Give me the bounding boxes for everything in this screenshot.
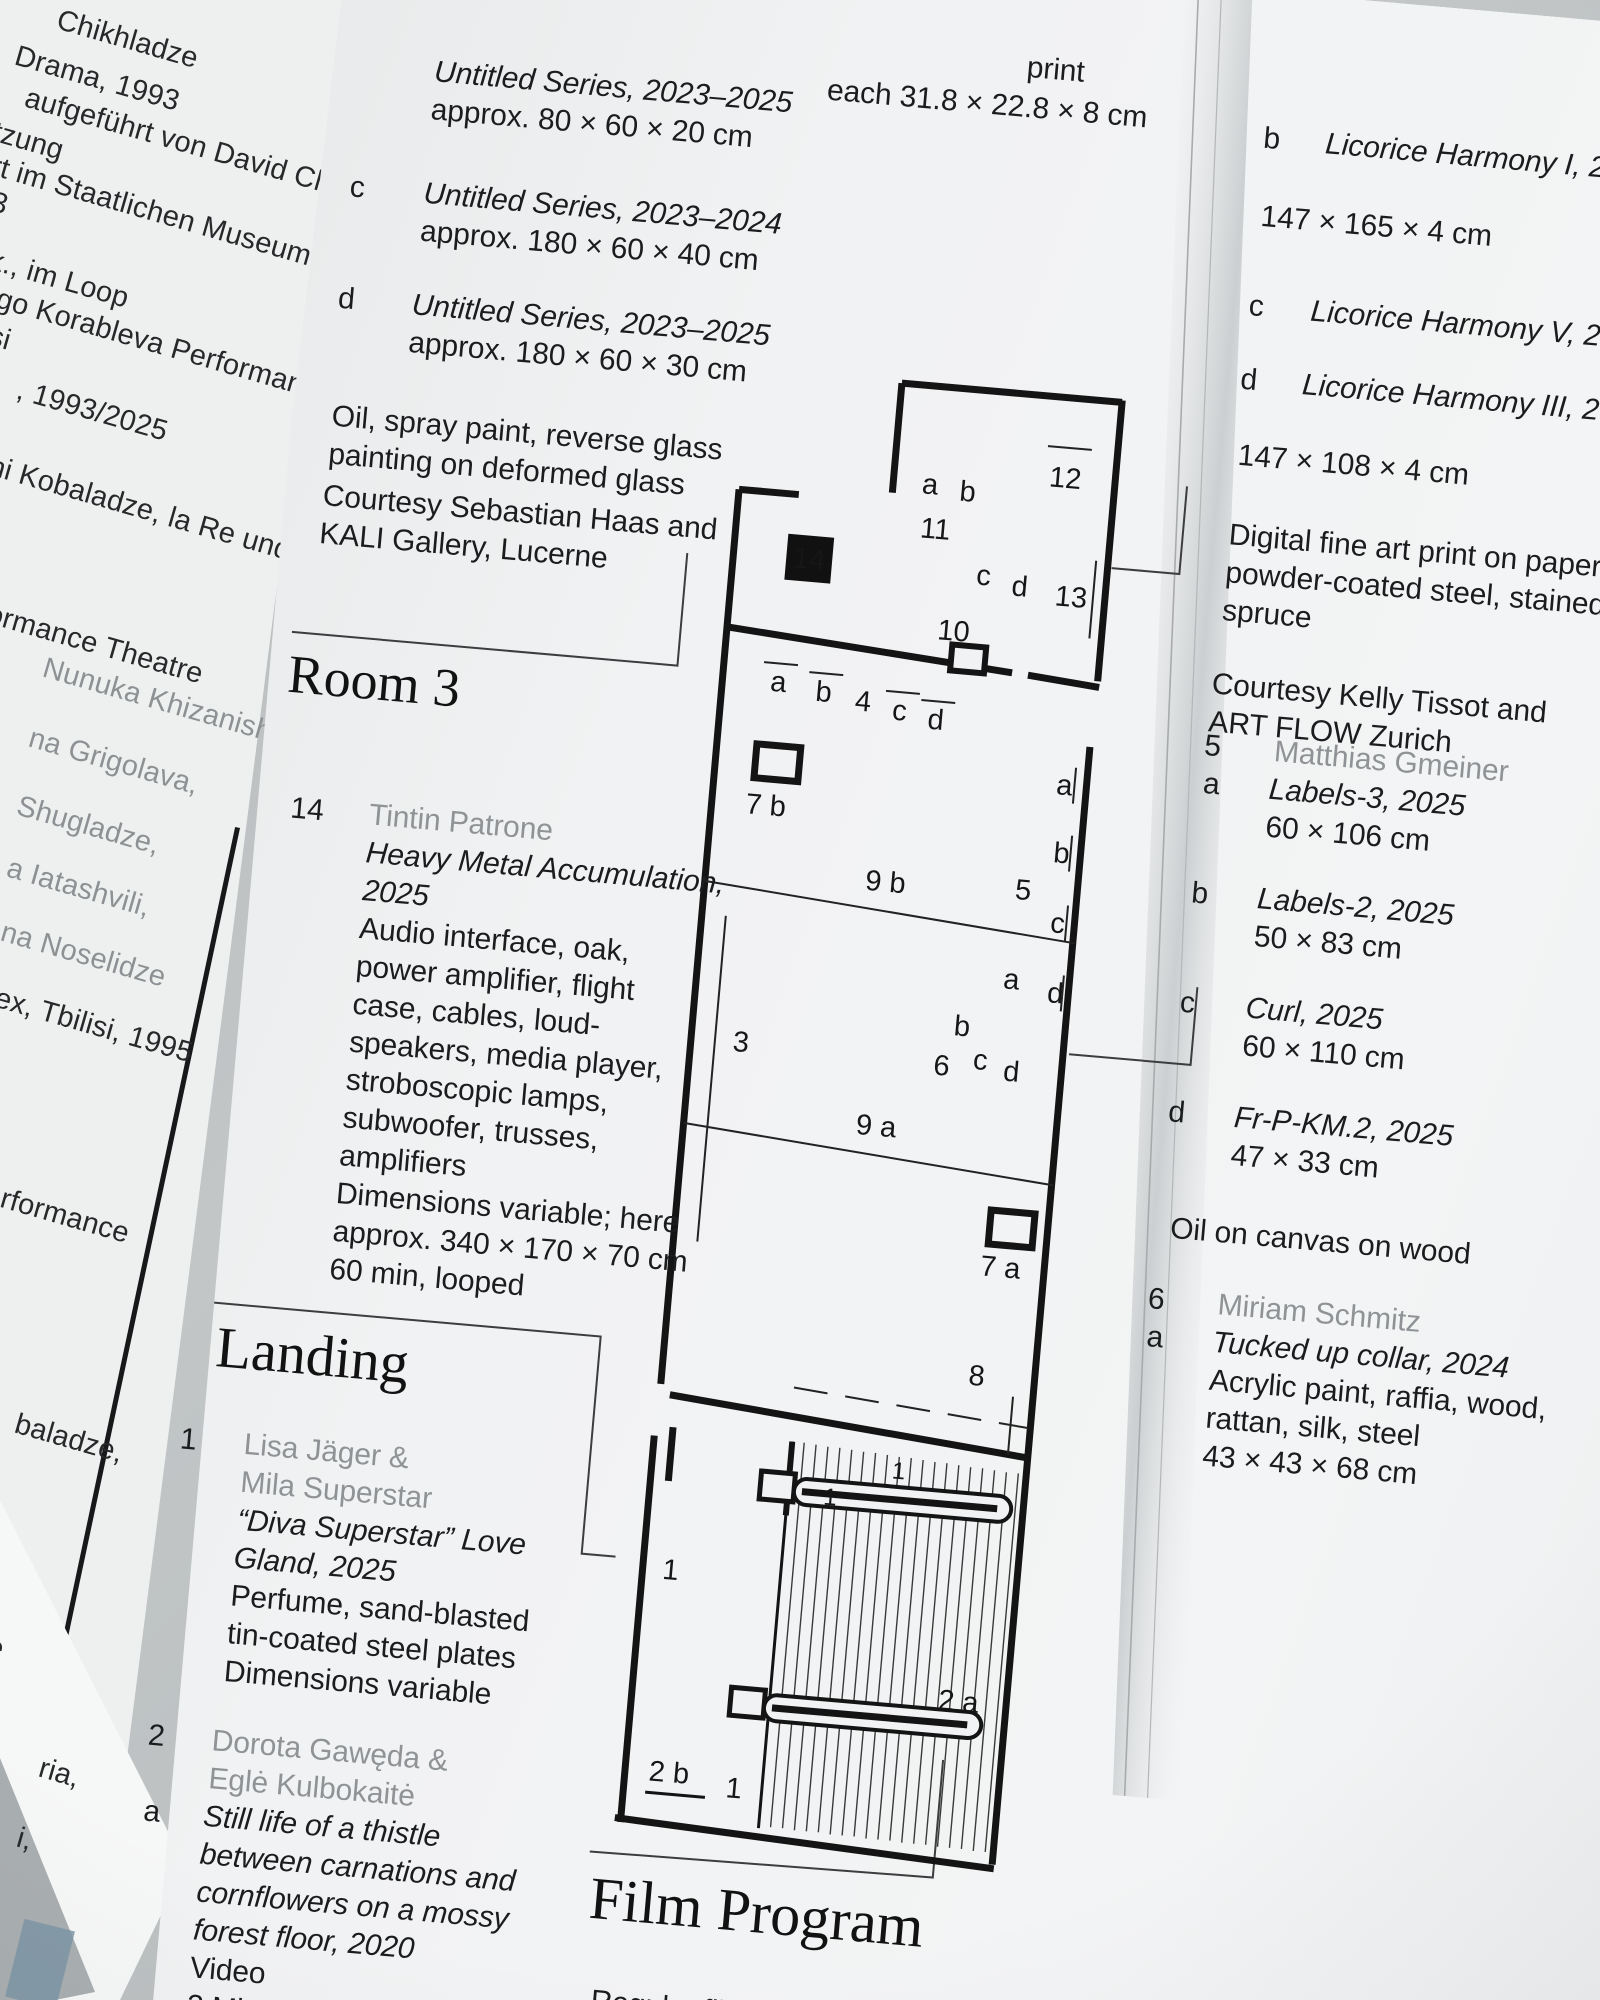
plan-label: 1 bbox=[822, 1484, 838, 1512]
plan-label: a bbox=[1055, 769, 1075, 802]
plan-label: 10 bbox=[936, 614, 971, 649]
plan-label: 3 bbox=[731, 1026, 750, 1059]
plan-label: b bbox=[1052, 837, 1071, 870]
plan-label: 7 b bbox=[744, 788, 787, 823]
work-letter: a bbox=[1145, 1320, 1165, 1355]
plan-label: 9 a bbox=[855, 1109, 899, 1144]
plan-label: a bbox=[921, 468, 941, 501]
plan-label: 11 bbox=[919, 512, 952, 547]
plan-label: c bbox=[1049, 907, 1066, 940]
work-letter: c bbox=[348, 170, 366, 205]
entry-number: 14 bbox=[289, 792, 325, 829]
entry-number: 6 bbox=[1147, 1282, 1167, 1317]
room14-top-stub bbox=[739, 489, 799, 494]
plan-label: 9 b bbox=[864, 865, 907, 900]
tick-13 bbox=[1089, 561, 1096, 639]
marker-7a-square bbox=[988, 1210, 1035, 1248]
plan-label: b bbox=[953, 1010, 972, 1043]
wall4-right bbox=[1027, 675, 1099, 687]
right-wall-lower bbox=[992, 747, 1090, 1865]
plan-label: a bbox=[769, 666, 789, 699]
work-letter: a bbox=[142, 1795, 162, 1830]
photo-of-exhibition-leaflet: Chikhladze Drama, 1993 aufgeführt von Da… bbox=[0, 0, 1600, 2000]
work-letter: c bbox=[1247, 289, 1265, 324]
plan-label: 4 bbox=[854, 685, 873, 718]
work-letter: d bbox=[1239, 363, 1259, 398]
plan-label: 2 b bbox=[648, 1755, 691, 1790]
plan-label: 1 bbox=[661, 1554, 680, 1587]
plan-label: 7 a bbox=[979, 1250, 1023, 1285]
work-letter: c bbox=[1178, 986, 1196, 1021]
plan-label-14: 14 bbox=[792, 542, 827, 577]
plan-label: 6 bbox=[932, 1050, 951, 1083]
plan-label: d bbox=[1010, 571, 1029, 604]
work-letter: d bbox=[337, 282, 357, 317]
plan-label: a bbox=[1002, 963, 1022, 996]
plan-label: 12 bbox=[1048, 461, 1083, 496]
entry-number: 1 bbox=[179, 1422, 199, 1457]
plan-label: c bbox=[975, 559, 992, 592]
plan-label: 1 bbox=[891, 1457, 907, 1485]
plan-label: b bbox=[958, 476, 977, 509]
marker-7b-square bbox=[754, 744, 801, 782]
label-2b-underline bbox=[645, 1792, 705, 1797]
work-letter: d bbox=[1167, 1095, 1187, 1130]
stairs bbox=[719, 1438, 1019, 1852]
plan-label: 5 bbox=[1014, 874, 1033, 907]
plan-label: c bbox=[972, 1044, 989, 1077]
right-wall-upper bbox=[1098, 400, 1123, 681]
work-letter: b bbox=[1262, 122, 1282, 157]
work-details: Audio interface, oak, power amplifier, f… bbox=[328, 910, 716, 1320]
plan-label: d bbox=[1002, 1056, 1021, 1089]
stairs-stub bbox=[668, 1427, 673, 1481]
tick-12 bbox=[1048, 446, 1092, 450]
plan-label: 13 bbox=[1054, 580, 1089, 615]
entry-number: 5 bbox=[1203, 729, 1223, 764]
handrail-post-upper bbox=[759, 1471, 795, 1502]
annex-left-wall bbox=[892, 383, 902, 493]
handrail-post-lower bbox=[729, 1687, 765, 1718]
clipped-word: print bbox=[1025, 49, 1086, 92]
work-title: Still life of a thistle between carnatio… bbox=[192, 1798, 520, 1977]
stairs-top-wall bbox=[667, 1395, 1032, 1459]
plan-label: d bbox=[926, 704, 945, 737]
plan-label: c bbox=[891, 695, 908, 728]
plan-label: b bbox=[814, 676, 833, 709]
plan-label: 1 bbox=[724, 1772, 743, 1805]
plan-label: 8 bbox=[967, 1360, 986, 1393]
plan-label: d bbox=[1046, 977, 1065, 1010]
entry-number: 2 bbox=[147, 1719, 167, 1754]
annex-top-wall bbox=[902, 383, 1122, 402]
work-letter: b bbox=[1190, 876, 1210, 911]
work-letter: a bbox=[1202, 767, 1222, 802]
plan-label: 2 a bbox=[937, 1684, 981, 1719]
main-leaflet-sheet: 14 a b 11 c d 10 12 13 a b 4 c d a b 5 c bbox=[118, 0, 1600, 2000]
plan-labels: a b 11 c d 10 12 13 a b 4 c d a b 5 c d … bbox=[643, 436, 1110, 1827]
